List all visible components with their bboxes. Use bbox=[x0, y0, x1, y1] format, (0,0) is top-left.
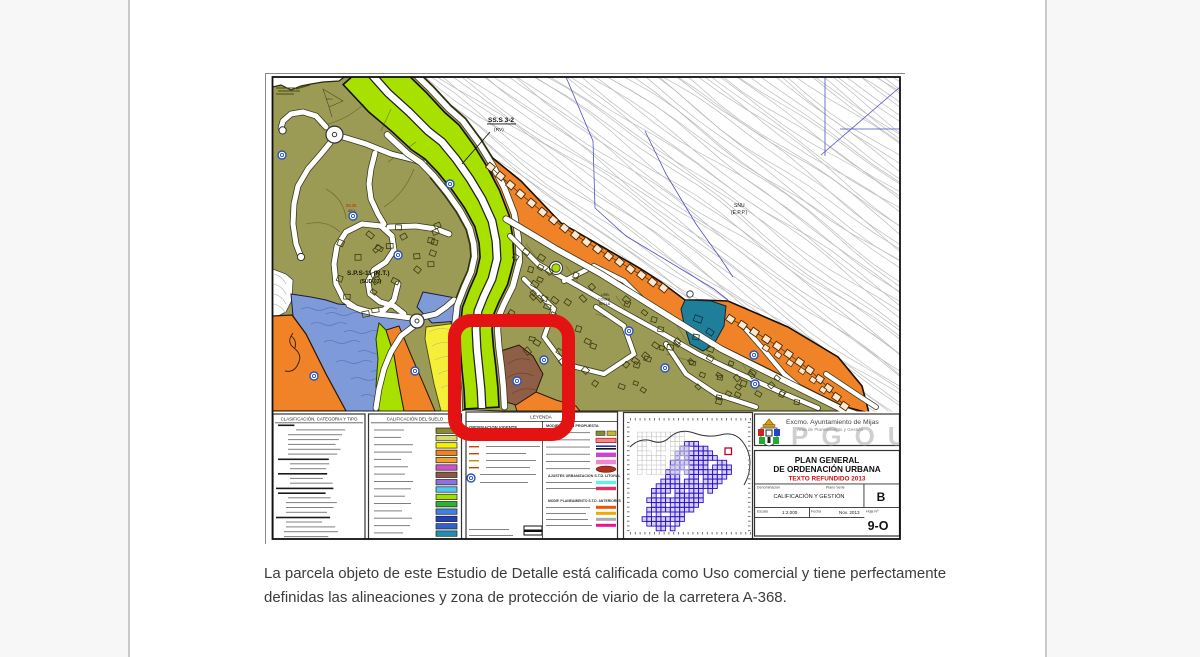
svg-text:COSTA: COSTA bbox=[598, 298, 611, 302]
svg-text:CALIFICACIÓN Y GESTIÓN: CALIFICACIÓN Y GESTIÓN bbox=[774, 493, 845, 500]
svg-text:AJUSTES URBANIZACION S.T.D. LI: AJUSTES URBANIZACION S.T.D. LITORAL bbox=[548, 474, 621, 478]
svg-text:SS.S 3-2: SS.S 3-2 bbox=[488, 117, 514, 124]
svg-text:CLASIFICACIÓN, CATEGORIA Y TIP: CLASIFICACIÓN, CATEGORIA Y TIPO bbox=[281, 417, 358, 422]
svg-text:CALIFICACIÓN DEL SUELO: CALIFICACIÓN DEL SUELO bbox=[387, 417, 444, 422]
svg-text:Hoja Nº: Hoja Nº bbox=[866, 510, 879, 514]
svg-text:AS-1: AS-1 bbox=[326, 97, 333, 101]
svg-text:BELLA: BELLA bbox=[599, 302, 611, 306]
svg-text:DE ORDENACIÓN URBANA: DE ORDENACIÓN URBANA bbox=[773, 463, 880, 474]
svg-text:(RV): (RV) bbox=[494, 127, 504, 133]
svg-text:Plano Serie: Plano Serie bbox=[826, 486, 845, 490]
svg-text:S.P.S-11 (R.T.): S.P.S-11 (R.T.) bbox=[347, 270, 390, 277]
svg-text:(E.P.P.): (E.P.P.) bbox=[731, 210, 748, 216]
svg-text:Escala: Escala bbox=[757, 510, 768, 514]
svg-text:MODIF. PLANEAMIENTO S.T.D. ANT: MODIF. PLANEAMIENTO S.T.D. ANTERIORES bbox=[548, 499, 621, 503]
svg-text:SNU: SNU bbox=[734, 203, 745, 209]
svg-text:LEYENDA: LEYENDA bbox=[530, 415, 552, 420]
svg-text:TEXTO REFUNDIDO 2013: TEXTO REFUNDIDO 2013 bbox=[789, 476, 866, 483]
svg-text:B: B bbox=[877, 490, 886, 504]
svg-text:Nov. 2013: Nov. 2013 bbox=[839, 510, 860, 515]
svg-text:Fecha: Fecha bbox=[811, 510, 821, 514]
svg-text:AR-1: AR-1 bbox=[348, 209, 356, 213]
svg-text:Excmo. Ayuntamiento de Mijas: Excmo. Ayuntamiento de Mijas bbox=[786, 419, 879, 426]
svg-text:Denominación: Denominación bbox=[757, 486, 780, 490]
svg-text:1:2.000: 1:2.000 bbox=[782, 510, 798, 515]
svg-text:9-O: 9-O bbox=[868, 519, 889, 533]
svg-text:PLAN GENERAL: PLAN GENERAL bbox=[795, 456, 860, 465]
svg-text:Área de Planeamiento y Gestión: Área de Planeamiento y Gestión bbox=[797, 426, 864, 432]
svg-text:65.35: 65.35 bbox=[346, 203, 357, 208]
svg-text:URB.: URB. bbox=[601, 293, 610, 297]
svg-text:(SUD-07): (SUD-07) bbox=[360, 279, 381, 285]
